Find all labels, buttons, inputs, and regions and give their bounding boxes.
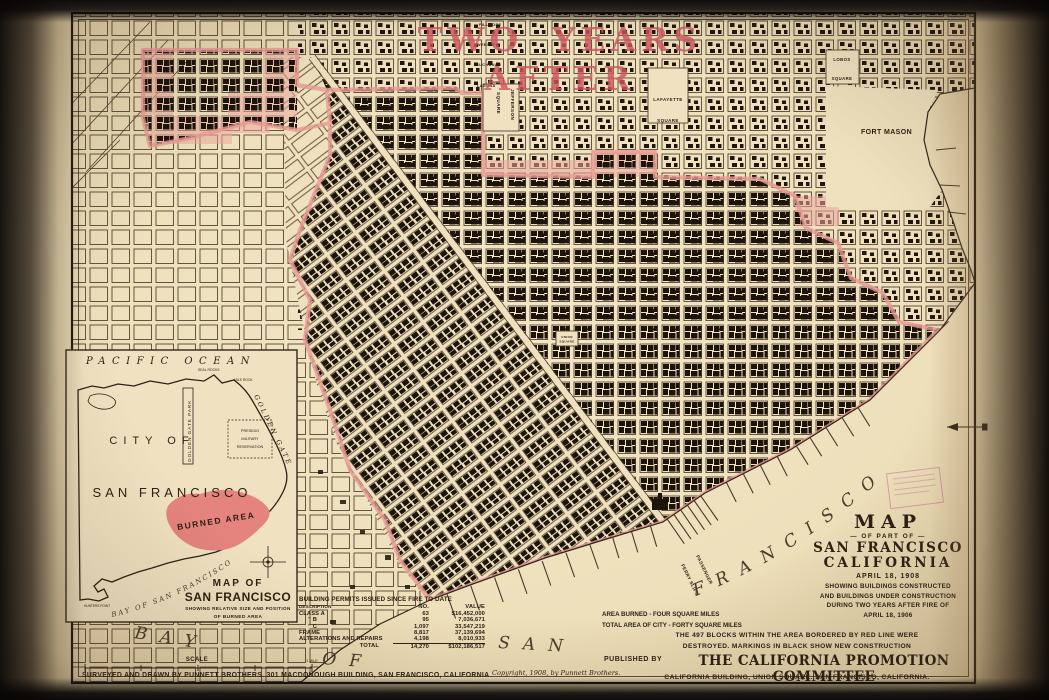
area-burned-line: AREA BURNED - FOUR SQUARE MILES (602, 609, 802, 620)
title-sf: SAN FRANCISCO (793, 541, 983, 556)
title-sub4: APRIL 18, 1906 (793, 611, 983, 621)
presidio-label2: MILITARY (241, 437, 259, 441)
surveyor-credit: SURVEYED AND DRAWN BY PUNNETT BROTHERS. … (82, 672, 489, 679)
san-word: SAN (498, 633, 577, 657)
inset-caption-3: SHOWING RELATIVE SIZE AND POSITION (185, 606, 291, 611)
title-ca: CALIFORNIA (793, 556, 983, 571)
union-square-label2: SQUARE (559, 340, 574, 344)
pacific-ocean-label: PACIFIC OCEAN (85, 356, 256, 367)
title-date: APRIL 18, 1908 (793, 571, 983, 582)
inset-caption-1: MAP OF (213, 578, 264, 589)
presidio-label: PRESIDIO (241, 429, 259, 433)
lafayette-square-label2: SQUARE (657, 118, 679, 123)
union-square-label: UNION (561, 335, 573, 339)
mile-rock-label: MILE ROCK (234, 378, 253, 382)
title-map: MAP (793, 512, 983, 532)
blocks-note-line2: DESTROYED. MARKINGS IN BLACK SHOW NEW CO… (612, 642, 982, 653)
published-by: PUBLISHED BY (604, 656, 662, 663)
golden-gate-park-label: GOLDEN GATE PARK (187, 400, 192, 462)
inset-map: PACIFIC OCEAN SEAL ROCKS MILE ROCK GOLDE… (66, 350, 297, 622)
fort-mason-area (826, 86, 942, 207)
map-poster: LOBOS SQUARE LAFAYETTE SQUARE SQUARE JEF… (0, 0, 1049, 700)
building-permits-table: BUILDING PERMITS ISSUED SINCE FIRE TO DA… (299, 597, 485, 650)
framed-map-photo: LOBOS SQUARE LAFAYETTE SQUARE SQUARE JEF… (0, 0, 1049, 700)
title-sub1: SHOWING BUILDINGS CONSTRUCTED (793, 582, 983, 592)
permits-header: BUILDING PERMITS ISSUED SINCE FIRE TO DA… (299, 597, 485, 603)
inset-caption-4: OF BURNED AREA (214, 614, 263, 620)
seal-rocks-label: SEAL ROCKS (198, 368, 220, 372)
presidio-label3: RESERVATION (237, 445, 264, 449)
hunters-point-label: HUNTERS POINT (84, 604, 110, 608)
blocks-note: THE 497 BLOCKS WITHIN THE AREA BORDERED … (612, 631, 982, 652)
library-stamp (884, 465, 946, 512)
blocks-note-line1: THE 497 BLOCKS WITHIN THE AREA BORDERED … (612, 631, 982, 642)
scale-unit-label: 1 MILE (306, 659, 318, 663)
table-total-row: TOTAL14,270$102,186,517 (299, 643, 485, 650)
lobos-square-label: LOBOS (833, 57, 850, 62)
city-of-label: CITY OF (109, 435, 194, 447)
copyright-note: Copyright, 1908, by Punnett Brothers. (492, 669, 620, 677)
publisher-address: CALIFORNIA BUILDING, UNION SQUARE. SAN F… (636, 674, 958, 681)
inset-caption-2: SAN FRANCISCO (185, 590, 292, 604)
scale-label: SCALE (186, 657, 208, 663)
fort-mason-label: FORT MASON (861, 129, 912, 136)
title-block: MAP — OF PART OF — SAN FRANCISCO CALIFOR… (793, 512, 983, 620)
poster-title: TWO YEARS AFTER (330, 20, 790, 98)
of-word: OF (322, 649, 375, 673)
total-area-line: TOTAL AREA OF CITY - FORTY SQUARE MILES (602, 620, 802, 631)
area-stats: AREA BURNED - FOUR SQUARE MILES TOTAL AR… (602, 609, 802, 631)
san-francisco-label: SAN FRANCISCO (93, 485, 252, 500)
lobos-square-label2: SQUARE (832, 76, 853, 81)
title-sub3: DURING TWO YEARS AFTER FIRE OF (793, 601, 983, 611)
title-sub2: AND BUILDINGS UNDER CONSTRUCTION (793, 592, 983, 602)
north-arrow (947, 423, 988, 431)
